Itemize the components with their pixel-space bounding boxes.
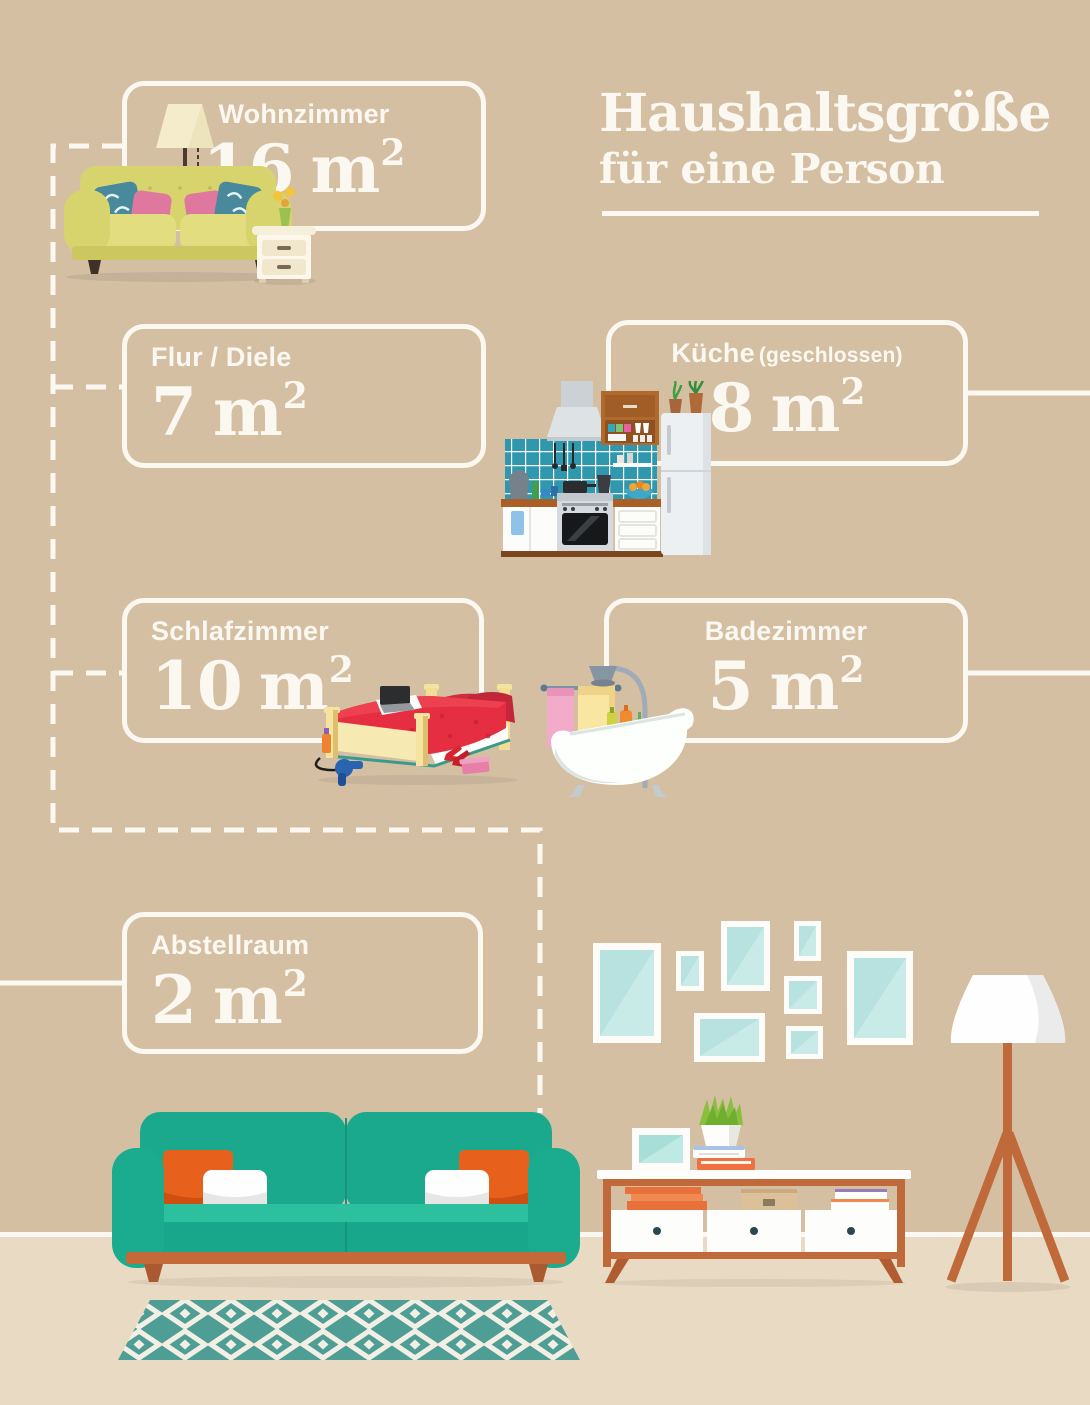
potted-plant-icon [699, 1095, 743, 1146]
wohnzimmer-illustration [58, 96, 320, 286]
room-box-abstellraum: Abstellraum 2m2 [122, 912, 483, 1054]
sideboard-icon [597, 1170, 911, 1283]
page-title: Haushaltsgröße für eine Person [599, 84, 1059, 216]
room-label-text: Badezimmer [705, 616, 868, 646]
tripod-floor-lamp-icon [946, 975, 1070, 1292]
room-label-abstellraum: Abstellraum [151, 930, 478, 961]
title-line-1: Haushaltsgröße [599, 84, 1059, 144]
room-label-text: Flur / Diele [151, 342, 291, 372]
room-size-unit: m [213, 961, 283, 1039]
room-size-sup: 2 [283, 963, 308, 1005]
bed-illustration [300, 658, 526, 792]
room-size-value: 7 [151, 373, 197, 451]
room-label-schlafzimmer: Schlafzimmer [151, 616, 479, 647]
floor-lamp-bottom-illustration [933, 973, 1083, 1295]
kitchen-illustration [497, 381, 713, 557]
room-label-note: (geschlossen) [759, 344, 903, 367]
framed-photo-icon [632, 1128, 690, 1170]
title-underline [602, 211, 1039, 216]
room-size-unit: m [771, 369, 841, 447]
room-size-sup: 2 [283, 375, 308, 417]
rug-illustration [116, 1298, 582, 1362]
bathtub-illustration [537, 638, 709, 798]
picture-frames-icon [593, 921, 913, 1062]
room-label-text: Küche [671, 338, 755, 368]
title-line-2: für eine Person [599, 144, 1059, 194]
room-label-kueche: Küche(geschlossen) [611, 338, 963, 369]
kitchen-unit-icon [501, 381, 663, 557]
book-stack-icon [693, 1146, 755, 1170]
fridge-icon [661, 381, 711, 555]
patterned-rug-icon [118, 1300, 580, 1360]
room-size-value: 8 [709, 369, 755, 447]
room-size-unit: m [310, 130, 380, 208]
room-label-flur-diele: Flur / Diele [151, 342, 481, 373]
room-size-sup: 2 [839, 649, 864, 691]
room-size-unit: m [213, 373, 283, 451]
room-box-flur-diele: Flur / Diele 7m2 [122, 324, 486, 468]
room-size-abstellraum: 2m2 [151, 964, 478, 1036]
room-label-text: Schlafzimmer [151, 616, 329, 646]
room-size-unit: m [770, 647, 840, 725]
room-size-value: 10 [151, 647, 243, 725]
room-size-value: 2 [151, 961, 197, 1039]
teal-sofa-icon [112, 1112, 580, 1288]
teal-sofa-illustration [110, 1106, 582, 1290]
room-size-value: 5 [708, 647, 754, 725]
room-size-sup: 2 [840, 371, 865, 413]
infographic-canvas: Haushaltsgröße für eine Person Wohnzimme… [0, 0, 1090, 1405]
room-size-flur-diele: 7m2 [151, 376, 481, 448]
gallery-frames-illustration [590, 915, 930, 1070]
room-label-text: Abstellraum [151, 930, 309, 960]
room-size-sup: 2 [380, 132, 405, 174]
